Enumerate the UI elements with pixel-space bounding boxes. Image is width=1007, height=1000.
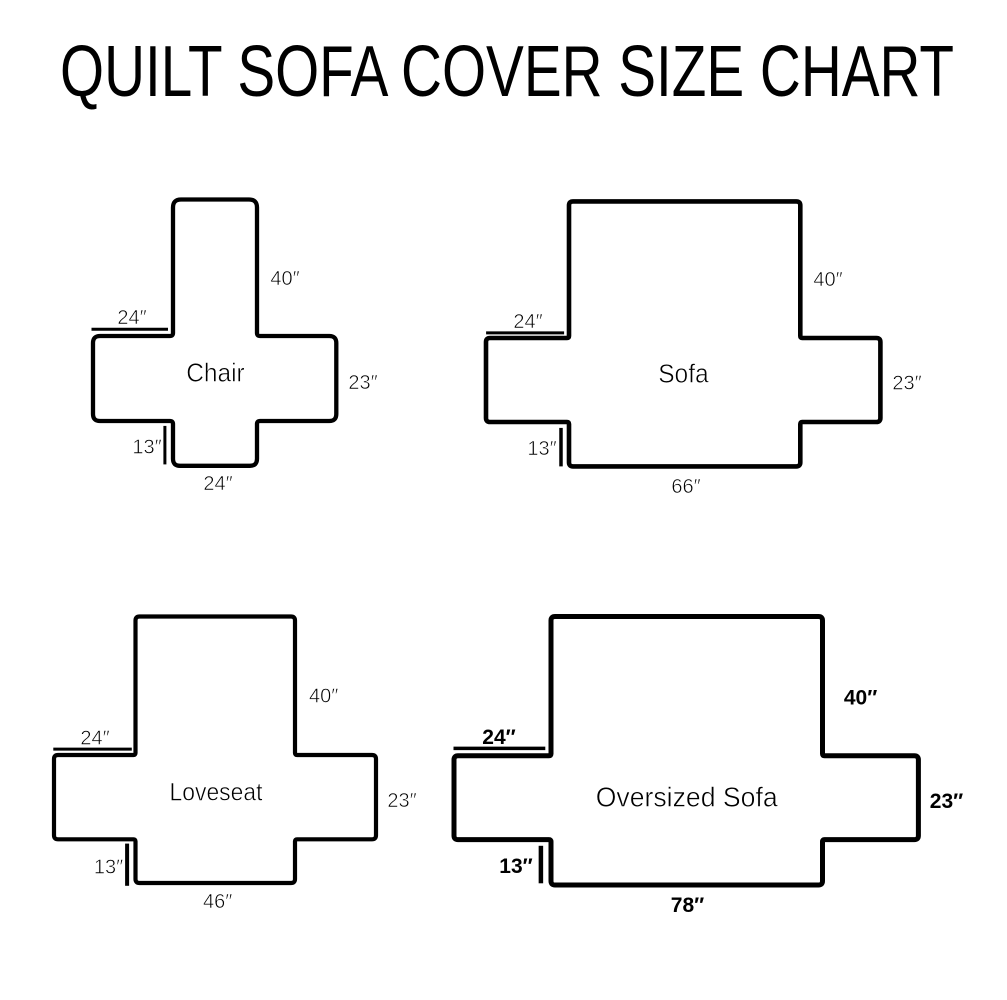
svg-text:23″: 23″ [387,790,416,812]
svg-text:Loveseat: Loveseat [170,778,263,806]
svg-text:66″: 66″ [671,476,700,498]
svg-text:13″: 13″ [527,438,556,460]
svg-text:40″: 40″ [813,269,842,291]
svg-text:Chair: Chair [186,358,245,388]
svg-text:46″: 46″ [203,891,232,913]
svg-text:24″: 24″ [80,728,109,750]
svg-text:24″: 24″ [203,473,232,495]
svg-text:23″: 23″ [892,373,921,395]
svg-text:Oversized Sofa: Oversized Sofa [596,782,779,813]
svg-text:13″: 13″ [499,855,532,878]
svg-text:78″: 78″ [671,894,704,917]
svg-text:13″: 13″ [94,856,123,878]
svg-text:QUILT SOFA COVER SIZE CHART: QUILT SOFA COVER SIZE CHART [60,32,954,112]
svg-text:24″: 24″ [513,311,542,333]
svg-text:23″: 23″ [930,790,963,813]
svg-text:40″: 40″ [309,686,338,708]
svg-text:Sofa: Sofa [658,360,709,388]
svg-text:40″: 40″ [270,268,299,290]
svg-text:24″: 24″ [482,726,515,749]
svg-text:40″: 40″ [844,687,877,710]
svg-text:24″: 24″ [117,307,146,329]
svg-text:23″: 23″ [348,372,377,394]
svg-text:13″: 13″ [132,437,161,459]
